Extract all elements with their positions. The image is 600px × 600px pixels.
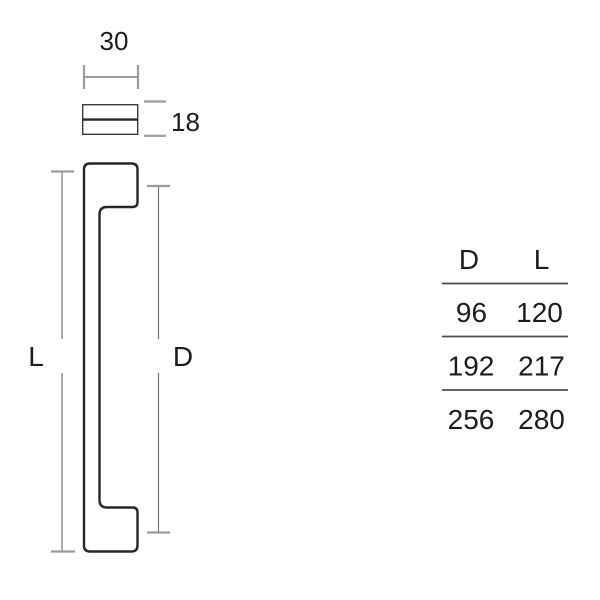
length-dimension-label: L <box>28 341 44 372</box>
handle-technical-drawing-page: 30 18 L D <box>0 0 600 600</box>
size-table-cell-d1: 96 <box>456 297 487 328</box>
size-table-header-d: D <box>459 244 479 275</box>
size-table-header-l: L <box>534 244 550 275</box>
size-table-cell-l3: 280 <box>518 404 565 435</box>
size-table-cell-d3: 256 <box>448 404 495 435</box>
size-table-row-3: 256 280 <box>448 404 565 435</box>
centers-dimension: D <box>147 186 193 533</box>
width-dimension-value: 30 <box>100 26 129 56</box>
size-table-row-2: 192 217 <box>448 351 565 382</box>
handle-profile-outline <box>84 164 138 552</box>
depth-dimension-value: 18 <box>171 107 200 137</box>
size-table-cell-l1: 120 <box>516 297 563 328</box>
technical-drawing-canvas: 30 18 L D <box>0 0 600 600</box>
size-table-cell-l2: 217 <box>518 351 565 382</box>
centers-dimension-label: D <box>173 341 193 372</box>
length-dimension: L <box>28 172 75 552</box>
depth-dimension: 18 <box>144 102 200 138</box>
width-dimension: 30 <box>84 26 138 89</box>
top-view-section <box>83 105 138 135</box>
size-table-row-1: 96 120 <box>456 297 563 328</box>
size-table: D L 96 120 192 217 256 280 <box>442 244 568 435</box>
size-table-cell-d2: 192 <box>448 351 495 382</box>
